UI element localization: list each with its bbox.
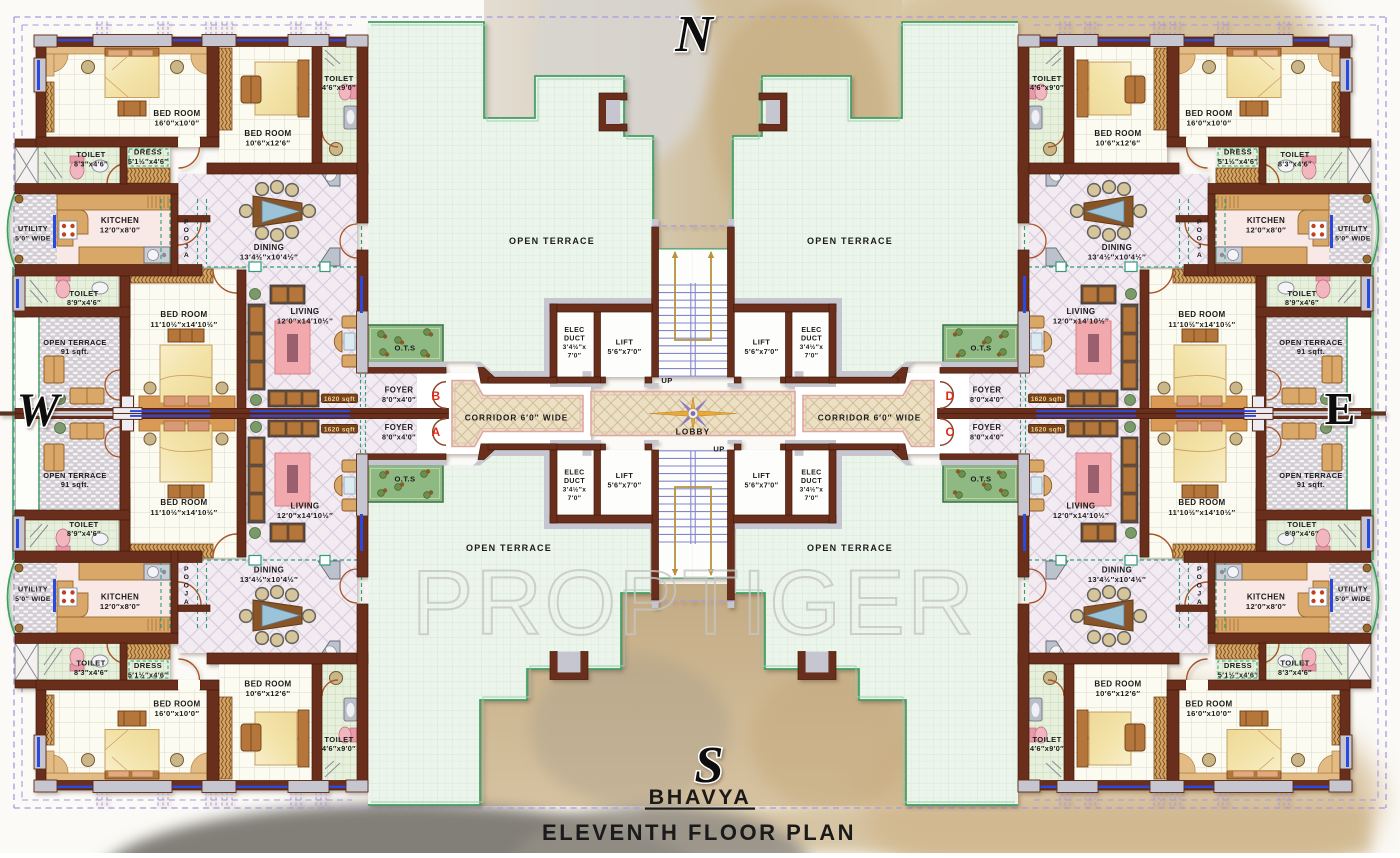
svg-text:O: O [1197,582,1203,589]
svg-text:FOYER: FOYER [973,423,1002,432]
svg-text:DUCT: DUCT [564,478,585,485]
svg-text:FOYER: FOYER [973,386,1002,395]
svg-text:CORRIDOR 6′0″ WIDE: CORRIDOR 6′0″ WIDE [818,414,922,423]
svg-text:DUCT: DUCT [801,336,822,343]
svg-text:8′9″x4′6″: 8′9″x4′6″ [67,529,101,538]
svg-text:TOILET: TOILET [1032,74,1061,83]
svg-text:BED ROOM: BED ROOM [153,700,200,709]
svg-text:KITCHEN: KITCHEN [101,216,139,225]
svg-text:4′6″x9′0″: 4′6″x9′0″ [1030,83,1064,92]
svg-text:4′6″x9′0″: 4′6″x9′0″ [1030,744,1064,753]
svg-text:DINING: DINING [254,566,284,575]
svg-text:FOYER: FOYER [385,423,414,432]
svg-text:12′0″x8′0″: 12′0″x8′0″ [100,602,140,611]
svg-text:TOILET: TOILET [1280,659,1309,668]
svg-text:N: N [674,6,715,63]
svg-text:BED ROOM: BED ROOM [160,498,207,507]
svg-text:ELEC: ELEC [564,327,584,334]
svg-text:1620 sqft: 1620 sqft [1031,426,1063,433]
svg-text:C: C [945,425,954,439]
svg-text:4′6″x9′0″: 4′6″x9′0″ [322,744,356,753]
svg-text:8′0″x4′0″: 8′0″x4′0″ [382,433,416,442]
svg-text:12′0″x14′10½″: 12′0″x14′10½″ [1053,511,1109,520]
svg-text:P: P [1197,219,1202,226]
svg-text:A: A [184,599,189,606]
svg-text:91 sqft.: 91 sqft. [1297,480,1325,489]
svg-text:A: A [1197,599,1202,606]
svg-text:7′0″: 7′0″ [805,353,819,360]
svg-text:BED ROOM: BED ROOM [160,310,207,319]
svg-text:8′9″x4′6″: 8′9″x4′6″ [1285,529,1319,538]
svg-text:TOILET: TOILET [69,520,98,529]
svg-text:J: J [184,244,188,251]
svg-text:KITCHEN: KITCHEN [1247,216,1285,225]
svg-text:13′4½″x10′4½″: 13′4½″x10′4½″ [1088,253,1146,262]
svg-text:O.T.S: O.T.S [971,475,992,484]
svg-text:5′0″ WIDE: 5′0″ WIDE [15,596,51,603]
svg-text:UTILITY: UTILITY [1338,224,1368,233]
svg-text:ELEC: ELEC [564,470,584,477]
svg-text:O.T.S: O.T.S [395,344,416,353]
svg-text:O: O [184,235,190,242]
svg-text:BED ROOM: BED ROOM [1178,498,1225,507]
svg-text:3′4½″x: 3′4½″x [800,486,824,494]
svg-text:8′3″x4′6″: 8′3″x4′6″ [74,668,108,677]
svg-text:J: J [1197,244,1201,251]
svg-text:O.T.S: O.T.S [971,344,992,353]
svg-text:A: A [1197,252,1202,259]
svg-text:12′0″x8′0″: 12′0″x8′0″ [100,226,140,235]
svg-text:A: A [431,425,440,439]
svg-text:11′10½″x14′10½″: 11′10½″x14′10½″ [1168,320,1235,329]
svg-text:16′0″x10′0″: 16′0″x10′0″ [1187,709,1232,718]
svg-text:5′6″x7′0″: 5′6″x7′0″ [608,481,642,490]
svg-text:LIVING: LIVING [1066,502,1095,511]
svg-text:12′0″x8′0″: 12′0″x8′0″ [1246,226,1286,235]
svg-text:OPEN TERRACE: OPEN TERRACE [807,236,893,246]
svg-text:O: O [184,582,190,589]
svg-text:TOILET: TOILET [1280,150,1309,159]
svg-text:BED ROOM: BED ROOM [1094,129,1141,138]
svg-text:UP: UP [713,445,724,454]
svg-text:7′0″: 7′0″ [805,495,819,502]
svg-text:UTILITY: UTILITY [1338,585,1368,594]
svg-text:8′3″x4′6″: 8′3″x4′6″ [1278,160,1312,169]
svg-text:TOILET: TOILET [1287,520,1316,529]
svg-text:O: O [1197,227,1203,234]
svg-text:3′4½″x: 3′4½″x [563,486,587,494]
svg-text:10′6″x12′6″: 10′6″x12′6″ [246,689,291,698]
svg-text:LIFT: LIFT [753,338,771,347]
svg-text:TOILET: TOILET [324,74,353,83]
svg-text:ELEVENTH FLOOR PLAN: ELEVENTH FLOOR PLAN [542,820,856,845]
svg-text:BED ROOM: BED ROOM [1094,680,1141,689]
svg-text:LIVING: LIVING [290,307,319,316]
svg-text:DRESS: DRESS [134,661,162,670]
svg-text:8′9″x4′6″: 8′9″x4′6″ [67,298,101,307]
svg-text:P: P [184,219,189,226]
svg-text:UTILITY: UTILITY [18,224,48,233]
svg-text:5′0″ WIDE: 5′0″ WIDE [1335,236,1371,243]
svg-text:DINING: DINING [1102,566,1132,575]
svg-text:TOILET: TOILET [76,659,105,668]
svg-text:10′6″x12′6″: 10′6″x12′6″ [1096,139,1141,148]
svg-text:16′0″x10′0″: 16′0″x10′0″ [1187,119,1232,128]
svg-text:LIFT: LIFT [616,338,634,347]
svg-text:12′0″x14′10½″: 12′0″x14′10½″ [277,317,333,326]
svg-text:BED ROOM: BED ROOM [244,680,291,689]
svg-text:KITCHEN: KITCHEN [1247,593,1285,602]
svg-text:7′0″: 7′0″ [568,495,582,502]
svg-text:DINING: DINING [1102,243,1132,252]
svg-text:10′6″x12′6″: 10′6″x12′6″ [246,139,291,148]
svg-text:5′0″ WIDE: 5′0″ WIDE [15,236,51,243]
svg-text:LIVING: LIVING [1066,307,1095,316]
svg-text:8′3″x4′6″: 8′3″x4′6″ [1278,668,1312,677]
svg-text:BED ROOM: BED ROOM [1185,700,1232,709]
svg-text:KITCHEN: KITCHEN [101,593,139,602]
svg-text:DINING: DINING [254,243,284,252]
svg-text:D: D [945,389,954,403]
svg-text:12′0″x14′10½″: 12′0″x14′10½″ [277,511,333,520]
svg-text:UP: UP [661,376,672,385]
svg-text:11′10½″x14′10½″: 11′10½″x14′10½″ [1168,508,1235,517]
svg-text:O.T.S: O.T.S [395,475,416,484]
svg-text:5′1½″x4′6″: 5′1½″x4′6″ [1218,157,1258,166]
svg-text:UTILITY: UTILITY [18,585,48,594]
svg-text:TOILET: TOILET [1287,289,1316,298]
svg-text:DUCT: DUCT [564,336,585,343]
svg-text:BHAVYA: BHAVYA [649,785,752,809]
svg-text:DRESS: DRESS [1224,661,1252,670]
svg-text:8′0″x4′0″: 8′0″x4′0″ [382,395,416,404]
svg-text:13′4½″x10′4½″: 13′4½″x10′4½″ [240,253,298,262]
svg-text:TOILET: TOILET [324,735,353,744]
svg-text:5′6″x7′0″: 5′6″x7′0″ [745,347,779,356]
svg-text:E: E [1325,383,1356,434]
svg-text:DRESS: DRESS [134,148,162,157]
svg-text:LIVING: LIVING [290,502,319,511]
svg-text:J: J [184,591,188,598]
svg-text:ELEC: ELEC [801,327,821,334]
svg-text:1620 sqft: 1620 sqft [324,426,356,433]
svg-text:OPEN TERRACE: OPEN TERRACE [1279,338,1343,347]
svg-text:W: W [17,384,63,437]
svg-text:CORRIDOR 6′0″ WIDE: CORRIDOR 6′0″ WIDE [465,414,569,423]
svg-text:91 sqft.: 91 sqft. [61,347,89,356]
svg-text:DUCT: DUCT [801,478,822,485]
svg-text:8′0″x4′0″: 8′0″x4′0″ [970,395,1004,404]
svg-text:3′4½″x: 3′4½″x [563,343,587,351]
svg-text:TOILET: TOILET [76,150,105,159]
svg-text:BED ROOM: BED ROOM [1185,109,1232,118]
svg-text:DRESS: DRESS [1224,148,1252,157]
svg-text:PROPTIGER: PROPTIGER [412,552,976,654]
svg-text:O: O [1197,574,1203,581]
svg-text:TOILET: TOILET [1032,735,1061,744]
svg-text:13′4½″x10′4½″: 13′4½″x10′4½″ [1088,575,1146,584]
svg-text:3′4½″x: 3′4½″x [800,343,824,351]
svg-text:5′1½″x4′6″: 5′1½″x4′6″ [128,157,168,166]
svg-text:J: J [1197,591,1201,598]
svg-text:OPEN TERRACE: OPEN TERRACE [1279,471,1343,480]
svg-text:TOILET: TOILET [69,289,98,298]
svg-text:LOBBY: LOBBY [676,428,711,437]
svg-text:12′0″x14′10½″: 12′0″x14′10½″ [1053,317,1109,326]
svg-text:OPEN TERRACE: OPEN TERRACE [43,471,107,480]
svg-text:OPEN TERRACE: OPEN TERRACE [43,338,107,347]
svg-text:LIFT: LIFT [753,471,771,480]
svg-text:91 sqft.: 91 sqft. [1297,347,1325,356]
svg-text:B: B [431,389,440,403]
svg-text:16′0″x10′0″: 16′0″x10′0″ [155,709,200,718]
svg-text:91 sqft.: 91 sqft. [61,480,89,489]
svg-text:7′0″: 7′0″ [568,353,582,360]
svg-text:OPEN TERRACE: OPEN TERRACE [509,236,595,246]
svg-text:8′0″x4′0″: 8′0″x4′0″ [970,433,1004,442]
svg-text:5′1½″x4′6″: 5′1½″x4′6″ [1218,671,1258,680]
svg-text:5′0″ WIDE: 5′0″ WIDE [1335,596,1371,603]
svg-text:BED ROOM: BED ROOM [1178,310,1225,319]
svg-text:O: O [1197,235,1203,242]
svg-text:16′0″x10′0″: 16′0″x10′0″ [155,119,200,128]
svg-text:BED ROOM: BED ROOM [153,109,200,118]
svg-text:1620 sqft: 1620 sqft [324,396,356,403]
svg-text:4′6″x9′0″: 4′6″x9′0″ [322,83,356,92]
svg-text:O: O [184,227,190,234]
svg-text:1620 sqft: 1620 sqft [1031,396,1063,403]
svg-text:10′6″x12′6″: 10′6″x12′6″ [1096,689,1141,698]
svg-text:11′10½″x14′10½″: 11′10½″x14′10½″ [150,508,217,517]
svg-text:5′1½″x4′6″: 5′1½″x4′6″ [128,671,168,680]
svg-text:8′3″x4′6″: 8′3″x4′6″ [74,160,108,169]
svg-text:5′6″x7′0″: 5′6″x7′0″ [608,347,642,356]
svg-text:12′0″x8′0″: 12′0″x8′0″ [1246,602,1286,611]
svg-text:13′4½″x10′4½″: 13′4½″x10′4½″ [240,575,298,584]
svg-text:LIFT: LIFT [616,471,634,480]
svg-text:11′10½″x14′10½″: 11′10½″x14′10½″ [150,320,217,329]
svg-text:O: O [184,574,190,581]
svg-text:FOYER: FOYER [385,386,414,395]
svg-text:P: P [1197,566,1202,573]
svg-text:P: P [184,566,189,573]
svg-text:BED ROOM: BED ROOM [244,129,291,138]
svg-text:8′9″x4′6″: 8′9″x4′6″ [1285,298,1319,307]
svg-text:ELEC: ELEC [801,470,821,477]
svg-text:5′6″x7′0″: 5′6″x7′0″ [745,481,779,490]
svg-text:A: A [184,252,189,259]
